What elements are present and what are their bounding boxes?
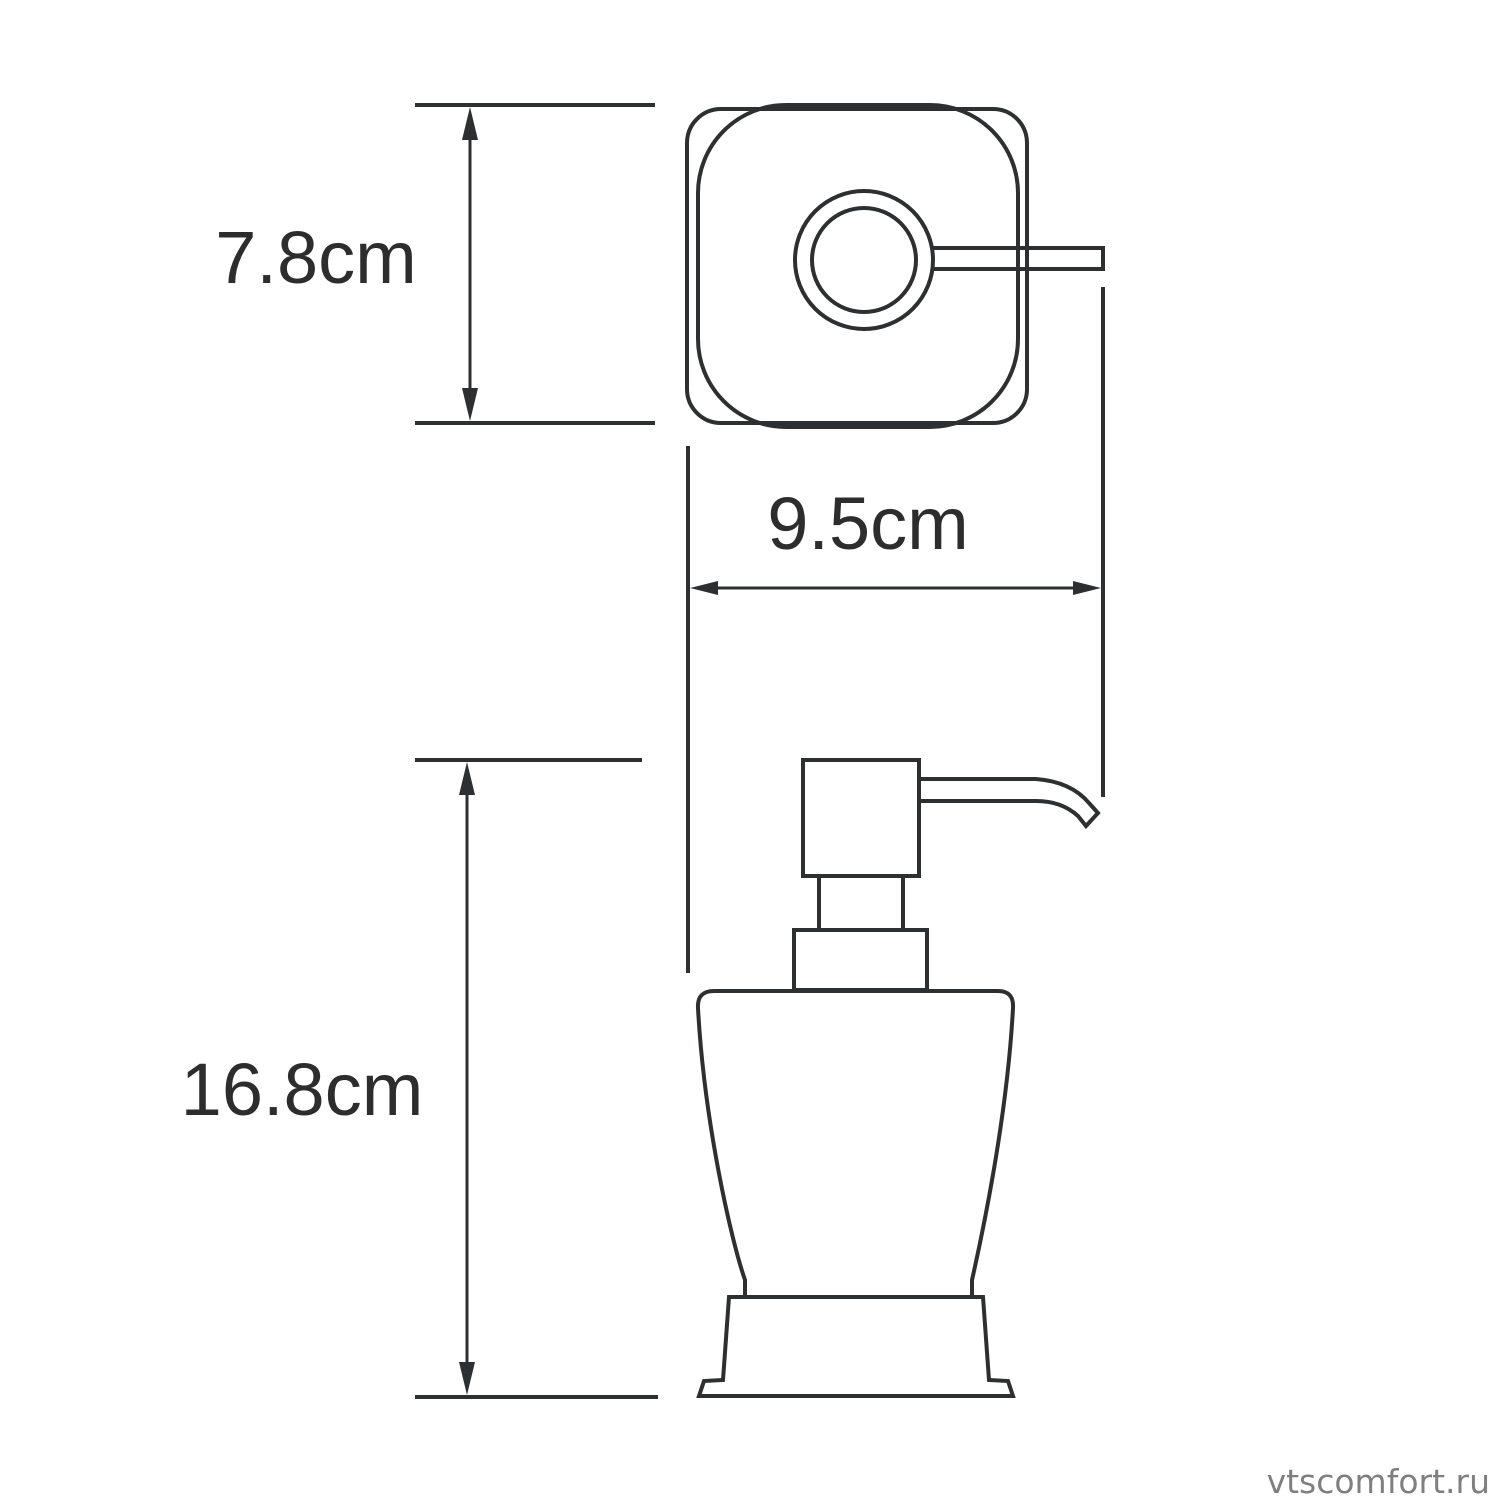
arrowhead-left: [690, 581, 718, 595]
top-view-pump-collar-inner-circle: [812, 208, 916, 312]
dimension-top-view-depth: [415, 105, 655, 423]
arrowhead-down: [459, 1362, 475, 1395]
arrowhead-up: [462, 107, 478, 140]
watermark-text: vtscomfort.ru: [1267, 1465, 1490, 1498]
dimension-body-height: [415, 760, 658, 1397]
side-view-spout: [919, 779, 1098, 826]
top-view-body-squircle: [698, 105, 1018, 427]
side-view-bottle-body: [698, 991, 1013, 1297]
top-view: [687, 105, 1103, 427]
side-view-base-pedestal: [699, 1297, 1013, 1396]
technical-drawing-canvas: 7.8cm 9.5cm 16.8cm vtscomfort.ru: [0, 0, 1496, 1506]
dimension-label-top-view-depth: 7.8cm: [215, 221, 417, 295]
dimension-overall-width: [688, 287, 1103, 973]
side-view: [698, 760, 1098, 1396]
dimension-label-overall-width: 9.5cm: [767, 487, 969, 561]
side-view-pump-head: [803, 760, 919, 876]
side-view-pump-neck: [819, 876, 903, 930]
arrowhead-right: [1073, 581, 1101, 595]
arrowhead-up: [459, 762, 475, 795]
top-view-pump-collar-outer-circle: [795, 191, 933, 329]
dimension-label-body-height: 16.8cm: [181, 1053, 424, 1127]
top-view-outer-square: [687, 109, 1027, 423]
side-view-pump-collar: [794, 930, 927, 990]
arrowhead-down: [462, 388, 478, 421]
